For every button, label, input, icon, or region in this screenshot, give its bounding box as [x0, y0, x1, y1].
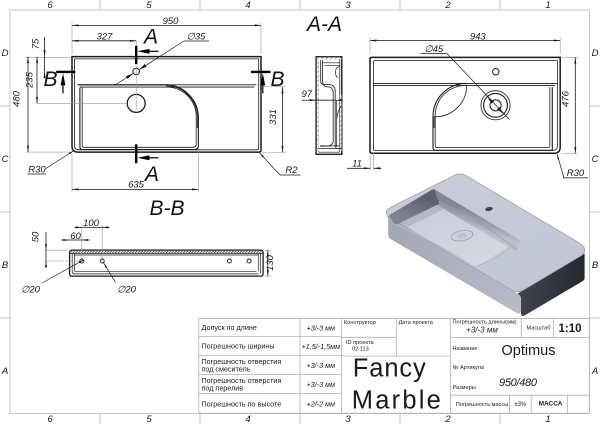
- svg-text:A: A: [143, 163, 159, 186]
- svg-text:100: 100: [83, 218, 100, 229]
- svg-text:635: 635: [128, 180, 145, 191]
- svg-text:№ Артикула: № Артикула: [453, 365, 485, 371]
- svg-text:C: C: [592, 154, 599, 165]
- svg-text:A: A: [142, 26, 158, 49]
- svg-text:5: 5: [146, 414, 152, 424]
- svg-text:5: 5: [146, 0, 152, 11]
- svg-text:B: B: [43, 68, 57, 91]
- svg-text:75: 75: [31, 38, 42, 49]
- svg-text:2: 2: [444, 0, 451, 11]
- svg-text:Масштаб: Масштаб: [527, 326, 551, 332]
- svg-text:Конструктор: Конструктор: [344, 320, 376, 326]
- svg-text:R30: R30: [567, 168, 585, 179]
- svg-text:Допуск по длине: Допуск по длине: [202, 323, 257, 332]
- svg-text:1: 1: [545, 0, 550, 11]
- svg-text:2: 2: [444, 414, 451, 424]
- svg-text:4: 4: [245, 414, 250, 424]
- svg-text:ID проекта: ID проекта: [346, 340, 375, 346]
- svg-text:под перелив: под перелив: [202, 384, 244, 393]
- svg-text:476: 476: [561, 90, 572, 107]
- svg-text:Fancy: Fancy: [353, 355, 426, 383]
- svg-text:D: D: [592, 48, 599, 59]
- svg-text:B: B: [592, 260, 599, 271]
- svg-text:МАССА: МАССА: [539, 401, 563, 408]
- svg-text:Погрешность массы: Погрешность массы: [456, 402, 508, 408]
- svg-text:∅20: ∅20: [21, 285, 41, 296]
- svg-text:Optimus: Optimus: [502, 343, 556, 359]
- svg-text:Название: Название: [453, 346, 478, 352]
- svg-text:331: 331: [268, 109, 279, 125]
- svg-text:50: 50: [31, 231, 42, 242]
- svg-text:+3/-3 мм: +3/-3 мм: [307, 380, 336, 389]
- svg-text:∅45: ∅45: [424, 44, 444, 55]
- svg-text:235: 235: [25, 71, 36, 89]
- svg-text:+1,5/-1,5мм: +1,5/-1,5мм: [302, 342, 340, 351]
- svg-text:+3/-3 мм: +3/-3 мм: [466, 326, 498, 335]
- svg-text:+3/-3 мм: +3/-3 мм: [307, 324, 336, 333]
- svg-text:B-B: B-B: [149, 197, 184, 220]
- svg-text:943: 943: [470, 31, 487, 42]
- svg-text:+2/-2 мм: +2/-2 мм: [307, 400, 336, 409]
- svg-text:R2: R2: [285, 165, 298, 176]
- svg-text:97: 97: [302, 89, 313, 100]
- svg-text:480: 480: [12, 90, 23, 107]
- svg-text:Размеры: Размеры: [453, 385, 476, 391]
- svg-text:под смеситель: под смеситель: [202, 365, 251, 374]
- svg-text:11: 11: [352, 159, 362, 170]
- svg-text:D: D: [2, 48, 9, 59]
- svg-text:C: C: [2, 154, 9, 165]
- svg-text:950/480: 950/480: [499, 377, 538, 389]
- svg-text:4: 4: [245, 0, 250, 11]
- svg-text:∅35: ∅35: [187, 32, 207, 43]
- svg-text:130: 130: [265, 254, 276, 271]
- svg-text:A: A: [591, 366, 598, 377]
- svg-text:02.113: 02.113: [352, 347, 369, 353]
- svg-text:Marble: Marble: [352, 387, 441, 415]
- svg-text:1:10: 1:10: [558, 323, 581, 335]
- svg-text:6: 6: [47, 0, 53, 11]
- svg-text:950: 950: [163, 16, 180, 27]
- svg-text:±3%: ±3%: [514, 402, 527, 408]
- svg-text:Погрешность ширины: Погрешность ширины: [202, 342, 275, 351]
- svg-text:3: 3: [345, 0, 351, 11]
- svg-text:+3/-3 мм: +3/-3 мм: [307, 361, 336, 370]
- svg-text:A-A: A-A: [305, 13, 342, 36]
- svg-text:R30: R30: [28, 164, 46, 175]
- svg-text:Дата проекта: Дата проекта: [399, 320, 434, 326]
- svg-text:∅20: ∅20: [117, 285, 137, 296]
- svg-text:6: 6: [47, 414, 53, 424]
- svg-text:327: 327: [97, 32, 114, 43]
- svg-text:1: 1: [545, 414, 550, 424]
- svg-text:3: 3: [345, 414, 351, 424]
- svg-text:B: B: [2, 260, 9, 271]
- svg-text:Погрешность по высоте: Погрешность по высоте: [202, 400, 282, 409]
- svg-text:B: B: [270, 68, 284, 91]
- svg-text:60: 60: [70, 231, 81, 242]
- svg-text:A: A: [1, 366, 8, 377]
